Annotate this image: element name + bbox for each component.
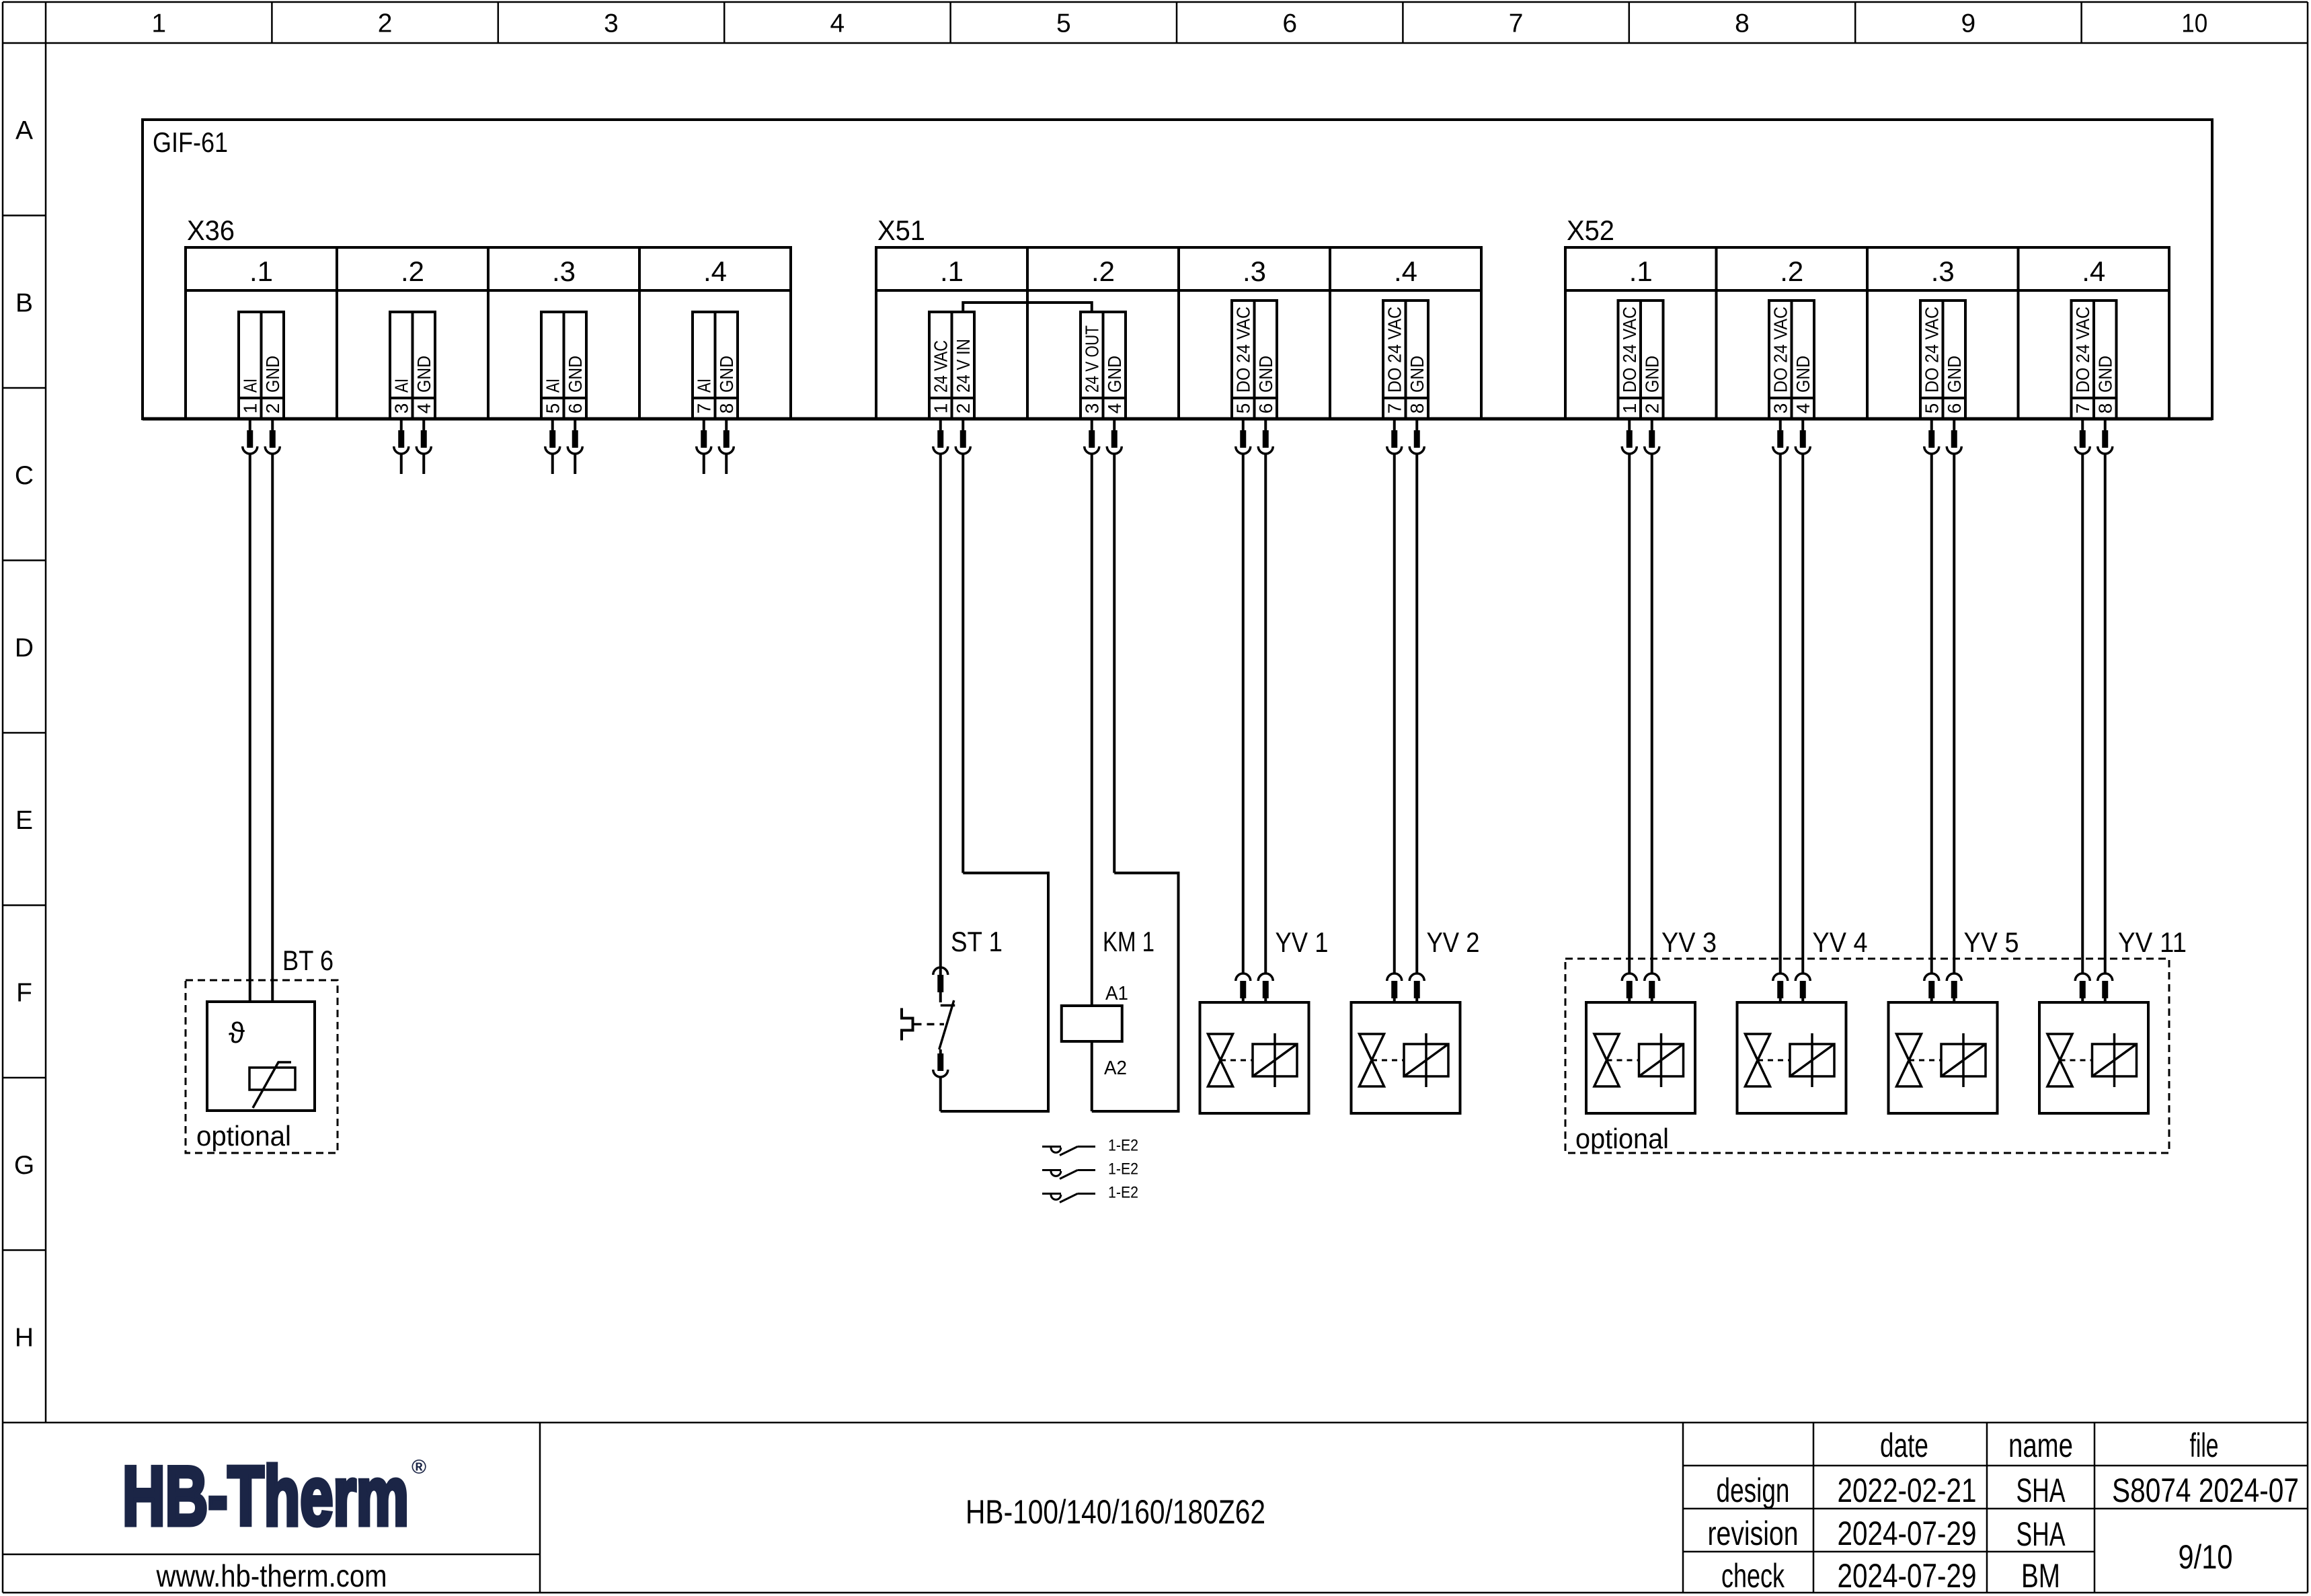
svg-text:1-E2: 1-E2 bbox=[1108, 1160, 1138, 1179]
svg-text:YV 5: YV 5 bbox=[1964, 926, 2019, 958]
svg-text:2024-07-29: 2024-07-29 bbox=[1838, 1557, 1977, 1595]
svg-text:YV 11: YV 11 bbox=[2118, 926, 2187, 958]
svg-text:A2: A2 bbox=[1104, 1058, 1127, 1079]
svg-text:1: 1 bbox=[930, 403, 951, 414]
svg-text:H: H bbox=[15, 1323, 34, 1352]
svg-text:D: D bbox=[15, 633, 34, 662]
svg-text:.1: .1 bbox=[1629, 255, 1653, 287]
svg-text:DO 24 VAC: DO 24 VAC bbox=[1619, 307, 1640, 393]
svg-text:ϑ: ϑ bbox=[229, 1016, 245, 1049]
svg-text:B: B bbox=[15, 288, 33, 317]
svg-text:optional: optional bbox=[196, 1120, 291, 1152]
svg-text:check: check bbox=[1721, 1557, 1785, 1595]
svg-text:GND: GND bbox=[716, 356, 737, 393]
svg-text:YV 2: YV 2 bbox=[1427, 926, 1480, 958]
svg-text:.3: .3 bbox=[552, 255, 576, 287]
svg-text:2: 2 bbox=[378, 9, 393, 38]
svg-text:8: 8 bbox=[1735, 9, 1750, 38]
svg-text:BT 6: BT 6 bbox=[282, 945, 334, 976]
svg-text:1: 1 bbox=[151, 9, 166, 38]
svg-text:2: 2 bbox=[262, 403, 283, 414]
svg-text:1: 1 bbox=[1619, 403, 1640, 414]
svg-text:6: 6 bbox=[565, 403, 586, 414]
svg-text:DO 24 VAC: DO 24 VAC bbox=[2072, 307, 2093, 393]
svg-text:file: file bbox=[2190, 1427, 2219, 1464]
svg-text:24 V IN: 24 V IN bbox=[953, 339, 974, 393]
svg-text:date: date bbox=[1880, 1427, 1928, 1464]
svg-text:24 V OUT: 24 V OUT bbox=[1081, 325, 1102, 393]
svg-text:2: 2 bbox=[1641, 403, 1662, 414]
svg-text:2024-07-29: 2024-07-29 bbox=[1838, 1515, 1977, 1552]
svg-text:3: 3 bbox=[604, 9, 619, 38]
svg-text:GND: GND bbox=[414, 356, 434, 393]
svg-text:9/10: 9/10 bbox=[2179, 1538, 2233, 1576]
svg-text:X51: X51 bbox=[877, 214, 925, 246]
svg-text:DO 24 VAC: DO 24 VAC bbox=[1384, 307, 1405, 393]
svg-text:X36: X36 bbox=[187, 214, 235, 246]
svg-text:DO 24 VAC: DO 24 VAC bbox=[1232, 307, 1253, 393]
svg-text:DO 24 VAC: DO 24 VAC bbox=[1770, 307, 1791, 393]
svg-text:S8074 2024-07: S8074 2024-07 bbox=[2112, 1472, 2299, 1509]
svg-text:A1: A1 bbox=[1105, 983, 1128, 1004]
svg-text:.3: .3 bbox=[1931, 255, 1955, 287]
svg-text:8: 8 bbox=[1407, 403, 1427, 414]
svg-text:HB-100/140/160/180Z62: HB-100/140/160/180Z62 bbox=[966, 1493, 1265, 1531]
svg-text:.1: .1 bbox=[940, 255, 964, 287]
svg-text:AI: AI bbox=[239, 378, 260, 393]
svg-text:revision: revision bbox=[1708, 1515, 1799, 1552]
svg-text:SHA: SHA bbox=[2016, 1515, 2066, 1553]
svg-text:AI: AI bbox=[542, 378, 563, 393]
svg-text:AI: AI bbox=[693, 378, 714, 393]
svg-text:GND: GND bbox=[1944, 356, 1965, 393]
svg-text:7: 7 bbox=[1384, 403, 1405, 414]
svg-text:.2: .2 bbox=[401, 255, 424, 287]
svg-text:6: 6 bbox=[1944, 403, 1965, 414]
svg-text:3: 3 bbox=[1770, 403, 1791, 414]
svg-text:A: A bbox=[15, 116, 33, 145]
svg-text:GND: GND bbox=[1793, 356, 1813, 393]
svg-text:SHA: SHA bbox=[2016, 1472, 2066, 1509]
svg-text:2: 2 bbox=[953, 403, 974, 414]
svg-text:.1: .1 bbox=[249, 255, 273, 287]
svg-text:7: 7 bbox=[1509, 9, 1524, 38]
svg-text:1-E2: 1-E2 bbox=[1108, 1137, 1138, 1155]
svg-text:4: 4 bbox=[414, 403, 434, 414]
svg-text:GND: GND bbox=[565, 356, 586, 393]
svg-text:4: 4 bbox=[1104, 403, 1125, 414]
svg-text:®: ® bbox=[412, 1456, 426, 1478]
svg-text:optional: optional bbox=[1575, 1123, 1669, 1154]
svg-text:www.hb-therm.com: www.hb-therm.com bbox=[156, 1558, 387, 1593]
svg-text:GND: GND bbox=[1407, 356, 1427, 393]
svg-text:KM 1: KM 1 bbox=[1103, 926, 1154, 957]
svg-text:7: 7 bbox=[693, 403, 714, 414]
svg-text:YV 4: YV 4 bbox=[1813, 926, 1868, 958]
svg-text:BM: BM bbox=[2021, 1557, 2060, 1595]
svg-text:YV 3: YV 3 bbox=[1661, 926, 1717, 958]
svg-text:GIF-61: GIF-61 bbox=[153, 126, 228, 158]
svg-text:HB-Therm: HB-Therm bbox=[122, 1450, 409, 1543]
svg-text:5: 5 bbox=[1921, 403, 1942, 414]
svg-text:3: 3 bbox=[391, 403, 412, 414]
svg-text:10: 10 bbox=[2181, 9, 2207, 38]
svg-text:9: 9 bbox=[1961, 9, 1976, 38]
svg-text:8: 8 bbox=[2094, 403, 2115, 414]
svg-text:4: 4 bbox=[830, 9, 845, 38]
svg-text:1-E2: 1-E2 bbox=[1108, 1184, 1138, 1202]
svg-text:GND: GND bbox=[1255, 356, 1276, 393]
svg-text:C: C bbox=[15, 461, 34, 490]
svg-text:.2: .2 bbox=[1780, 255, 1803, 287]
svg-text:design: design bbox=[1717, 1472, 1790, 1509]
svg-text:.2: .2 bbox=[1091, 255, 1115, 287]
svg-text:YV 1: YV 1 bbox=[1276, 926, 1329, 958]
svg-text:3: 3 bbox=[1081, 403, 1102, 414]
svg-text:GND: GND bbox=[1104, 356, 1125, 393]
svg-text:name: name bbox=[2008, 1427, 2073, 1464]
svg-text:24 VAC: 24 VAC bbox=[930, 340, 951, 393]
svg-text:5: 5 bbox=[1056, 9, 1071, 38]
svg-text:GND: GND bbox=[262, 356, 283, 393]
svg-text:G: G bbox=[14, 1151, 34, 1180]
svg-text:2022-02-21: 2022-02-21 bbox=[1838, 1472, 1977, 1509]
svg-text:6: 6 bbox=[1255, 403, 1276, 414]
svg-text:E: E bbox=[15, 806, 33, 835]
svg-text:.4: .4 bbox=[703, 255, 727, 287]
svg-text:.4: .4 bbox=[1394, 255, 1417, 287]
svg-text:6: 6 bbox=[1282, 9, 1297, 38]
svg-text:5: 5 bbox=[542, 403, 563, 414]
svg-text:GND: GND bbox=[1641, 356, 1662, 393]
svg-text:.3: .3 bbox=[1243, 255, 1266, 287]
svg-text:5: 5 bbox=[1232, 403, 1253, 414]
svg-text:X52: X52 bbox=[1567, 214, 1614, 246]
svg-text:7: 7 bbox=[2072, 403, 2093, 414]
svg-text:GND: GND bbox=[2094, 356, 2115, 393]
svg-text:4: 4 bbox=[1793, 403, 1813, 414]
svg-text:8: 8 bbox=[716, 403, 737, 414]
svg-text:ST 1: ST 1 bbox=[951, 926, 1003, 957]
svg-text:.4: .4 bbox=[2082, 255, 2105, 287]
svg-text:F: F bbox=[16, 978, 32, 1007]
svg-text:AI: AI bbox=[391, 378, 412, 393]
svg-text:DO 24 VAC: DO 24 VAC bbox=[1921, 307, 1942, 393]
svg-text:1: 1 bbox=[239, 403, 260, 414]
